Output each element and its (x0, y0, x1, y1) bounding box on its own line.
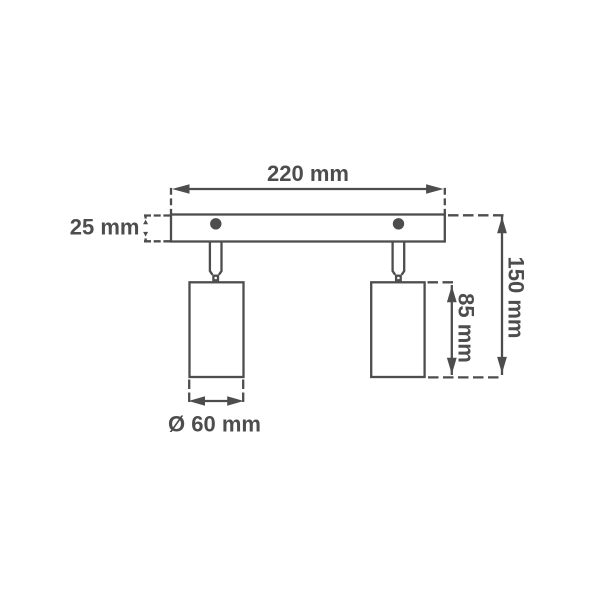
svg-text:85 mm: 85 mm (454, 293, 479, 363)
svg-text:150 mm: 150 mm (504, 257, 529, 339)
svg-text:220 mm: 220 mm (267, 161, 349, 186)
svg-text:25 mm: 25 mm (70, 215, 140, 240)
svg-text:Ø 60 mm: Ø 60 mm (168, 412, 261, 437)
